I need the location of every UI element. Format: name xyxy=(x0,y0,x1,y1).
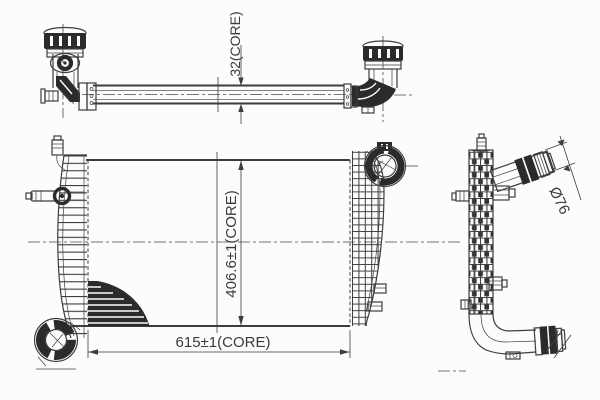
dimension-core-width-label: 615±1(CORE) xyxy=(176,334,271,351)
left-fitting-mount-plate xyxy=(87,83,96,110)
arrowhead xyxy=(89,349,99,354)
left-tank xyxy=(58,155,87,338)
front-view: 406.6±1(CORE) 615±1(CORE) xyxy=(26,136,462,369)
core-fin-detail xyxy=(88,281,150,326)
dimension-core-height-label: 406.6±1(CORE) xyxy=(223,190,240,297)
arrowhead xyxy=(238,104,243,112)
intercooler-drawing: 32(CORE) xyxy=(0,0,600,400)
right-fitting-elbow xyxy=(352,78,396,107)
side-view: Ø76 xyxy=(438,134,581,371)
top-view-right-fitting xyxy=(344,36,414,122)
side-lower-pipe xyxy=(469,314,566,359)
extension-line xyxy=(553,163,575,171)
dimension-pipe-diameter: Ø76 xyxy=(545,136,581,217)
technical-drawing-canvas: 32(CORE) xyxy=(0,0,600,400)
side-top-pin xyxy=(477,134,486,151)
top-view: 32(CORE) xyxy=(41,11,414,124)
top-view-left-fitting xyxy=(41,24,96,118)
arrowhead xyxy=(238,316,243,326)
dimension-core-thickness-label: 32(CORE) xyxy=(227,11,243,76)
dimension-pipe-diameter-label: Ø76 xyxy=(545,184,573,217)
dimension-core-height: 406.6±1(CORE) xyxy=(217,152,244,333)
dimension-core-width: 615±1(CORE) xyxy=(88,330,350,358)
arrowhead xyxy=(340,349,350,354)
dimension-core-thickness: 32(CORE) xyxy=(218,11,244,124)
side-left-pin-upper xyxy=(452,191,469,201)
arrowhead xyxy=(238,161,243,171)
